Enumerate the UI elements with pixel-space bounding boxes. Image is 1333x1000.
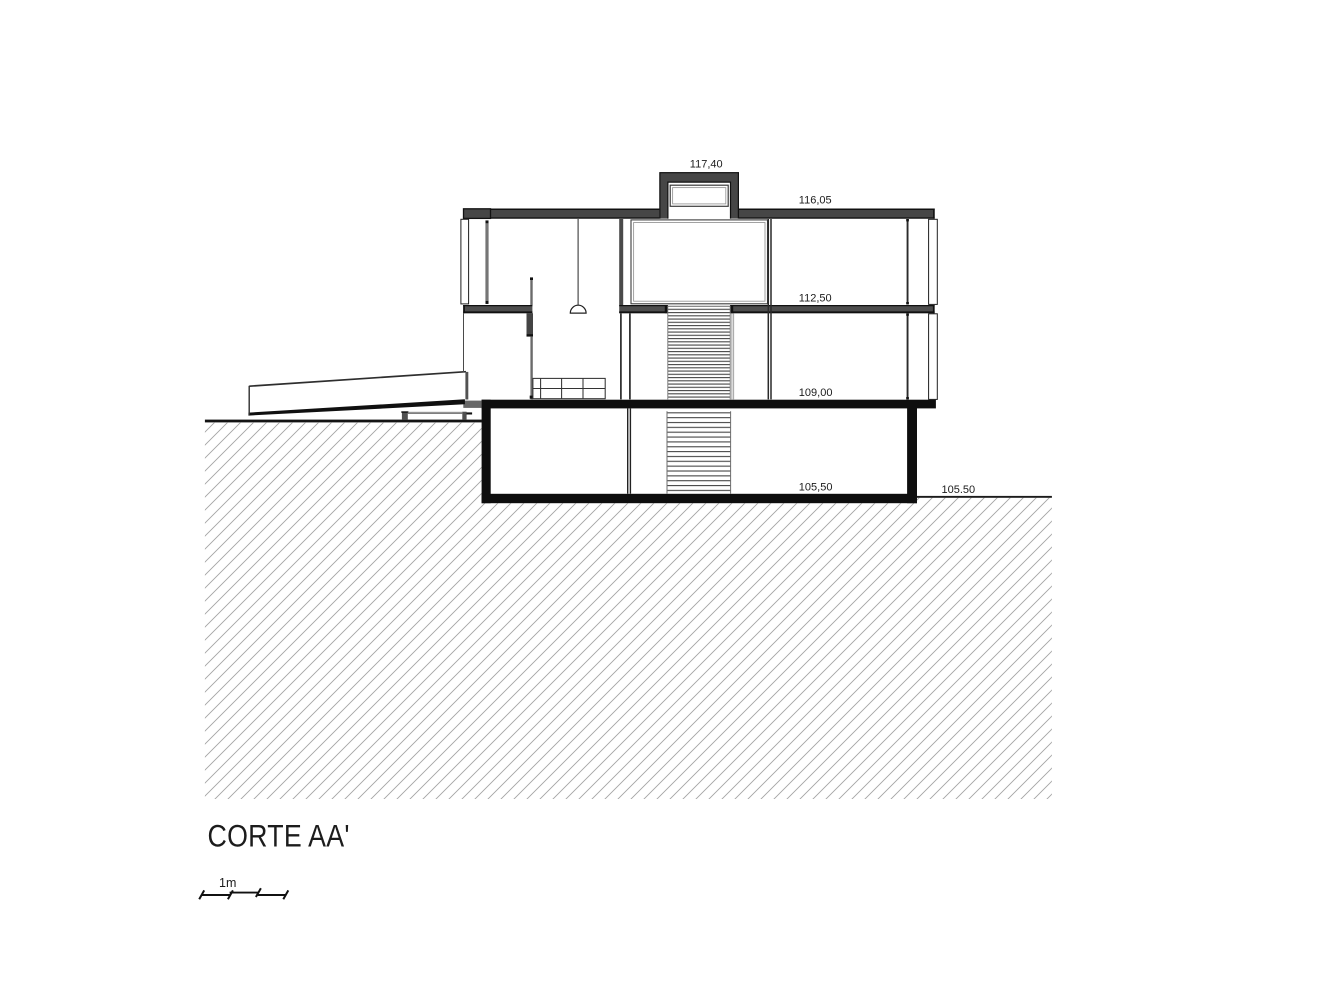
svg-text:109,00: 109,00 bbox=[799, 387, 833, 399]
svg-text:CORTE AA': CORTE AA' bbox=[208, 820, 350, 854]
svg-text:117,40: 117,40 bbox=[690, 158, 723, 170]
svg-text:112,50: 112,50 bbox=[799, 293, 832, 305]
svg-text:116,05: 116,05 bbox=[799, 195, 832, 207]
svg-text:1m: 1m bbox=[219, 876, 236, 890]
svg-text:105.50: 105.50 bbox=[942, 484, 976, 496]
svg-text:105,50: 105,50 bbox=[799, 482, 833, 494]
